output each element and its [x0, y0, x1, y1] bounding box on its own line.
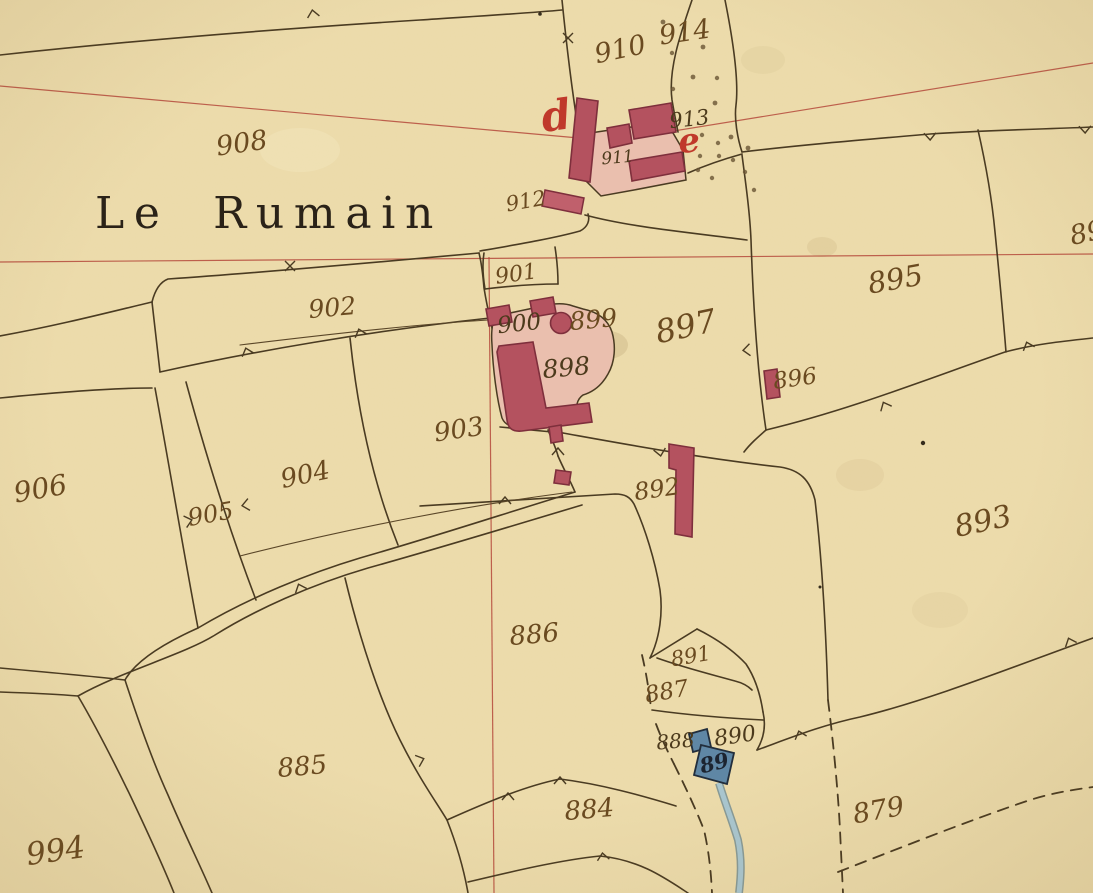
parcel-label-898: 898 — [541, 351, 591, 384]
parcel-label-888: 888 — [655, 727, 695, 754]
parcel-label-900: 900 — [496, 309, 542, 339]
parcel-label-885: 885 — [276, 750, 328, 784]
parcel-label-886: 886 — [508, 618, 560, 652]
building-stub — [549, 425, 563, 443]
parcel-label-884: 884 — [563, 793, 615, 827]
parcel-label-902: 902 — [307, 291, 357, 324]
map-canvas: Le Rumain 908 910 914 913 911 912 901 90… — [0, 0, 1093, 893]
building-911-left — [607, 124, 632, 148]
cadastral-map: Le Rumain 908 910 914 913 911 912 901 90… — [0, 0, 1093, 893]
parcel-label-899: 899 — [568, 303, 618, 336]
place-name-title: Le Rumain — [95, 188, 443, 239]
letter-label-e: e — [677, 120, 702, 162]
building-small-road — [554, 470, 571, 485]
parcel-label-911: 911 — [601, 147, 635, 170]
